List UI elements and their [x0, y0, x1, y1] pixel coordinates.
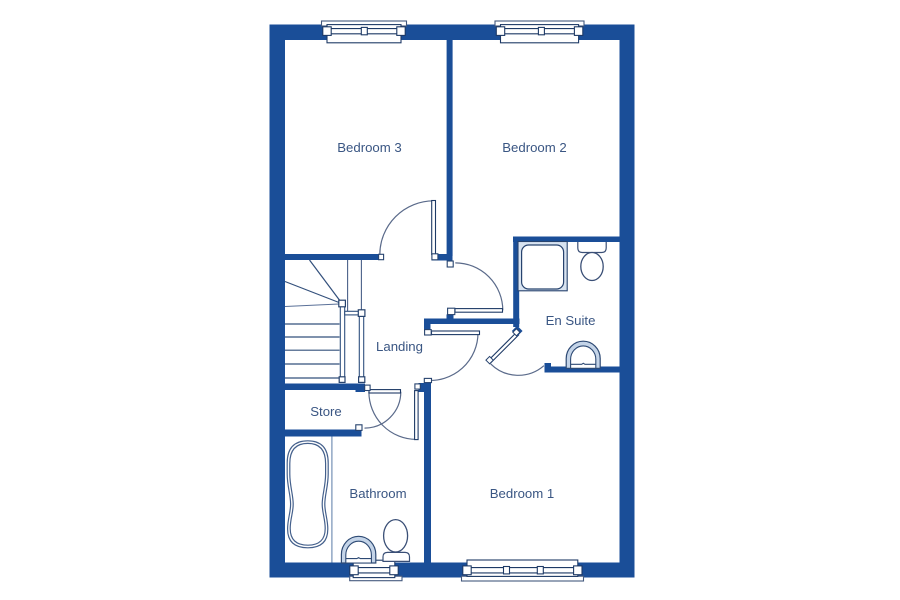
- svg-text:Bathroom: Bathroom: [349, 486, 406, 501]
- svg-text:Bedroom 2: Bedroom 2: [502, 140, 567, 155]
- svg-text:Bedroom 1: Bedroom 1: [490, 486, 555, 501]
- svg-text:Store: Store: [310, 404, 342, 419]
- svg-text:Landing: Landing: [376, 339, 423, 354]
- svg-text:En Suite: En Suite: [546, 313, 596, 328]
- svg-text:Bedroom 3: Bedroom 3: [337, 140, 402, 155]
